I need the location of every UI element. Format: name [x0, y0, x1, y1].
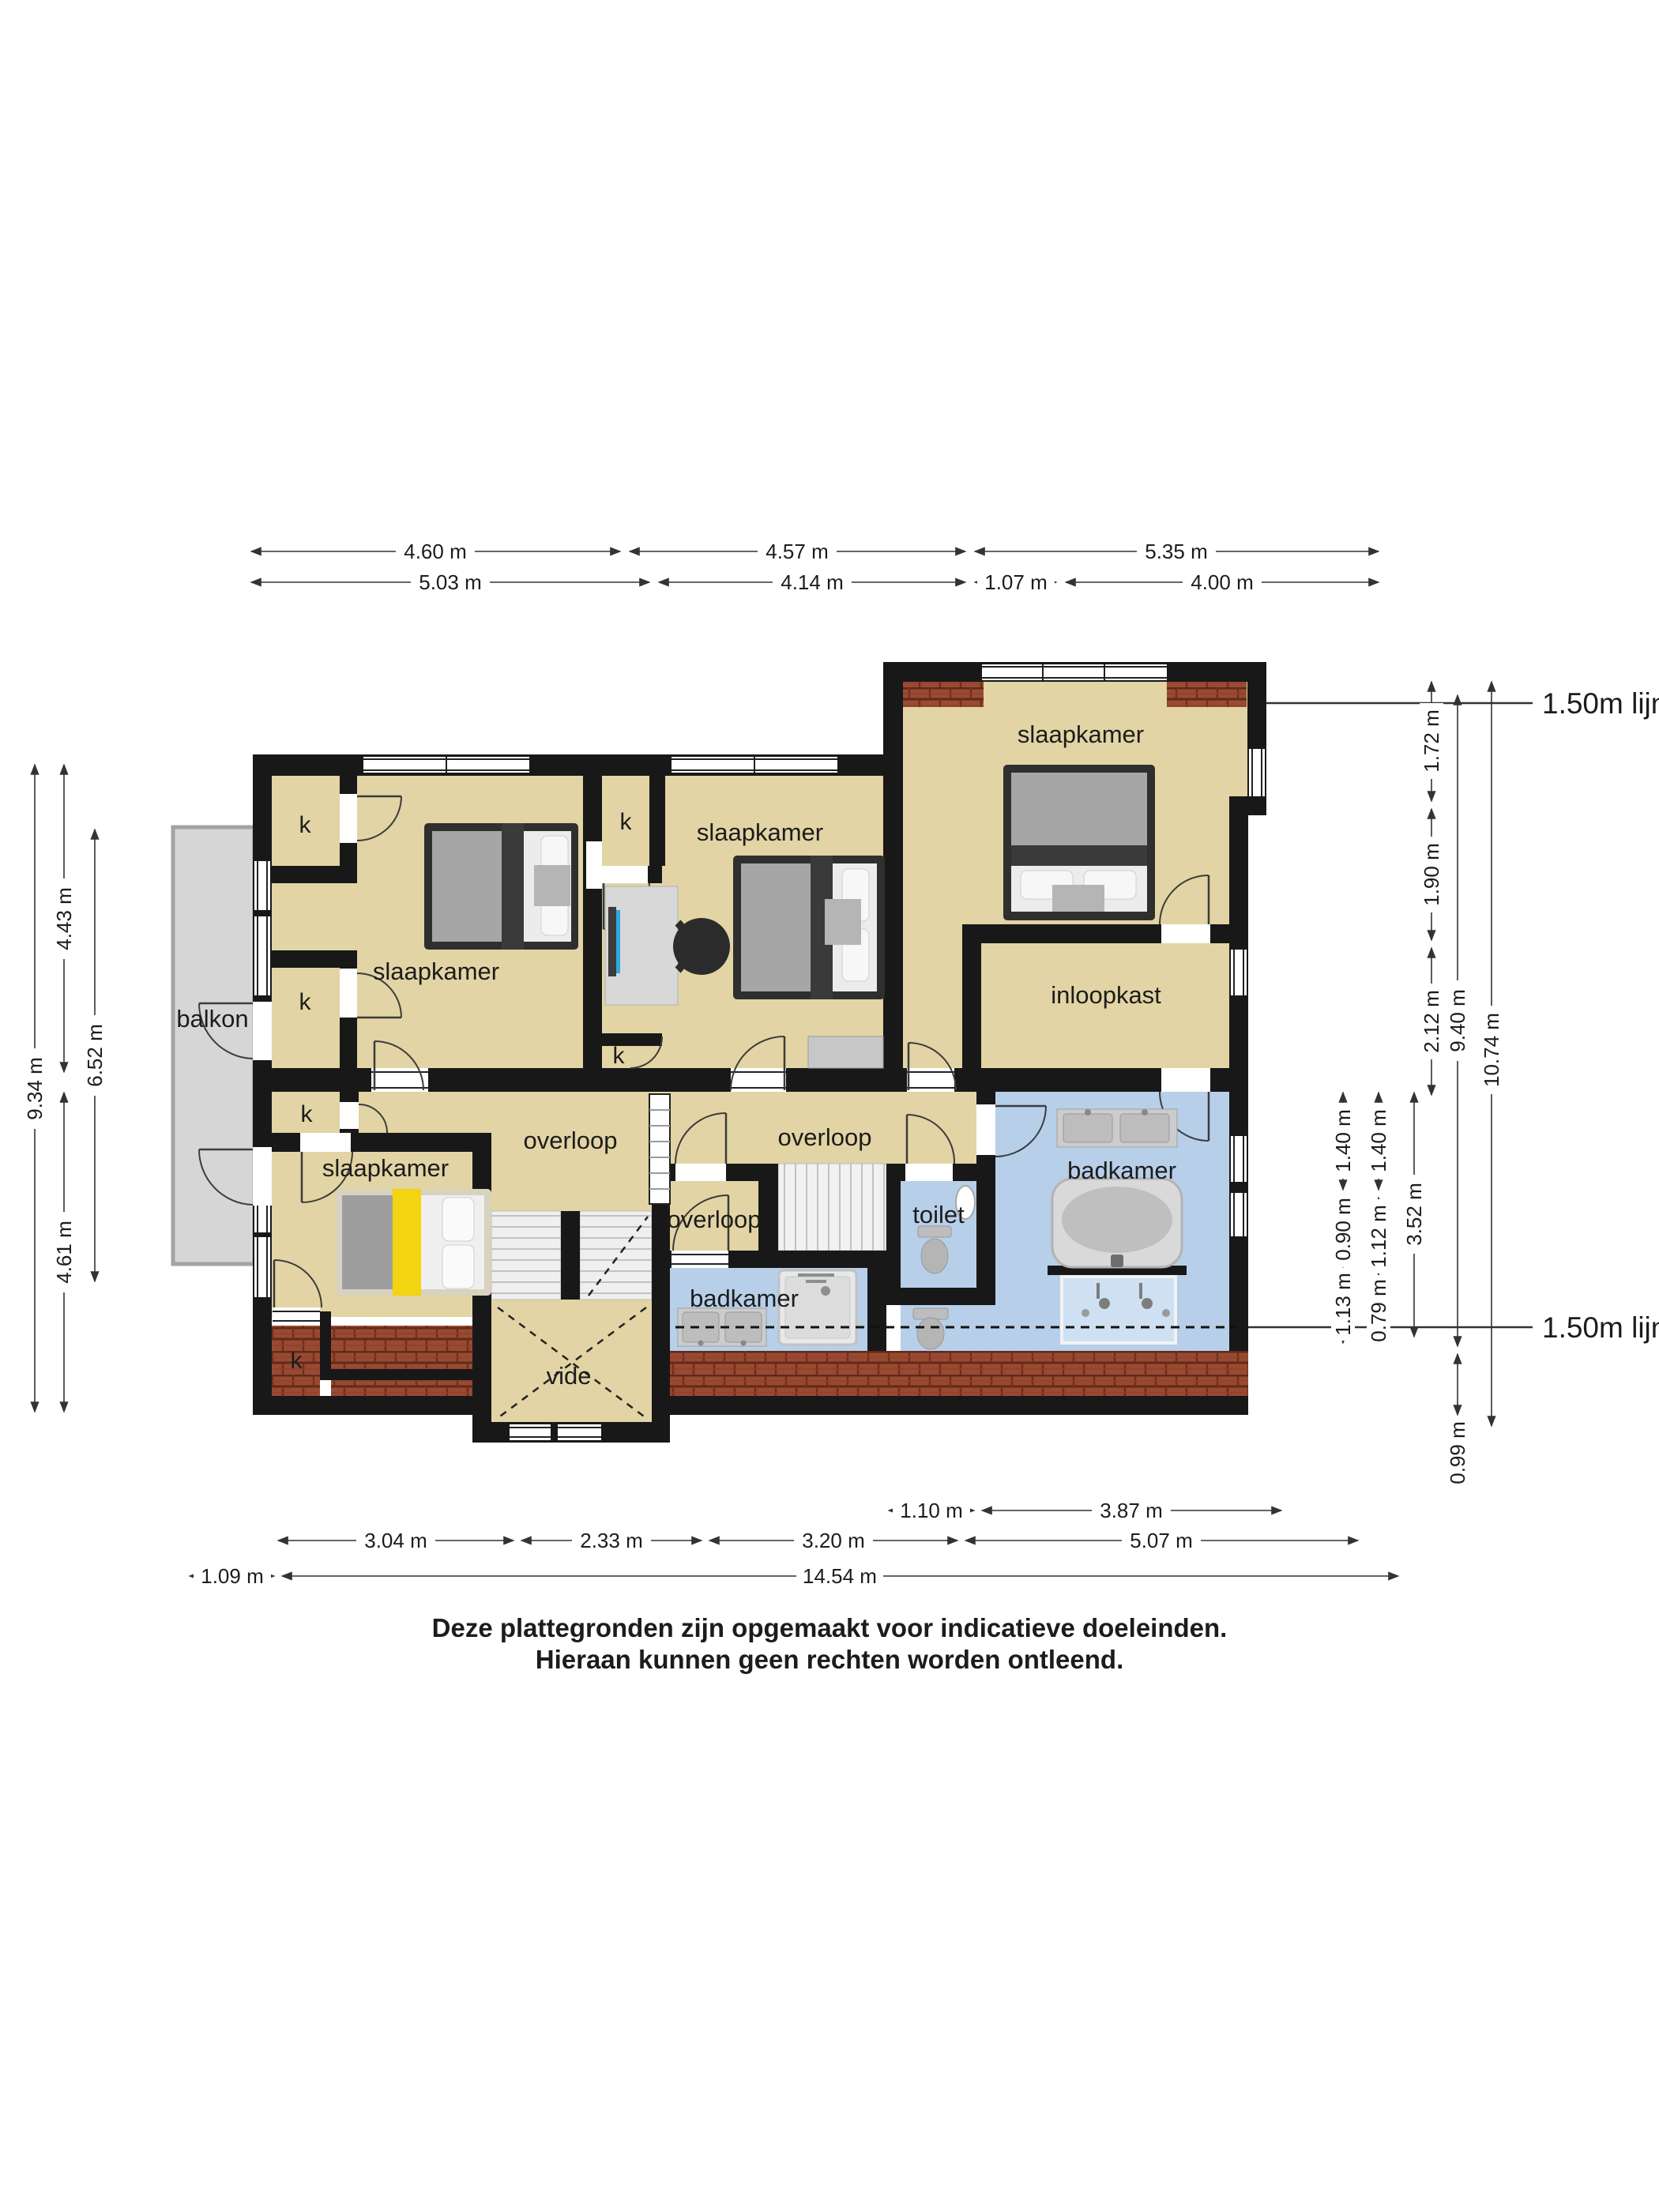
wall-bottom-left	[253, 1396, 491, 1415]
dim-top-414: 4.14 m	[659, 570, 965, 594]
window-top-3	[982, 664, 1167, 680]
room-label-walk-in-closet: inloopkast	[1051, 981, 1161, 1009]
room-label-landing-left: overloop	[524, 1127, 618, 1154]
wall-recess-bedroom1-2	[586, 841, 602, 889]
dim-bottom-110: 1.10 m	[889, 1499, 974, 1522]
dim-right-140a: 1.40 m	[1331, 1093, 1355, 1190]
disclaimer-line-2: Hieraan kunnen geen rechten worden ontle…	[536, 1645, 1123, 1674]
dim-top-535: 5.35 m	[975, 540, 1379, 563]
room-label-bedroom-4: slaapkamer	[322, 1154, 449, 1182]
svg-text:4.57 m: 4.57 m	[766, 540, 829, 563]
wall-toilet-bottom	[886, 1288, 980, 1305]
svg-text:1.40 m: 1.40 m	[1367, 1109, 1390, 1172]
balcony-floor	[173, 827, 254, 1264]
svg-text:4.43 m: 4.43 m	[52, 887, 76, 950]
closet-label-k2: k	[299, 989, 312, 1015]
dim-right-099: 0.99 m	[1446, 1354, 1469, 1489]
svg-text:4.00 m: 4.00 m	[1191, 570, 1254, 594]
dim-bottom-233: 2.33 m	[521, 1529, 702, 1552]
svg-text:0.79 m: 0.79 m	[1367, 1279, 1390, 1342]
wall-bottom-right	[652, 1396, 1248, 1415]
floor-plan-page: 1.50m lijn 1.50m lijn slaapkamer slaapka…	[0, 0, 1659, 2212]
dim-top-457: 4.57 m	[630, 540, 965, 563]
svg-text:6.52 m: 6.52 m	[83, 1024, 107, 1087]
bedroom-3-alcove-floor	[903, 924, 962, 1092]
line-150-bottom-label: 1.50m lijn	[1542, 1311, 1659, 1344]
line-150-top-label: 1.50m lijn	[1542, 687, 1659, 720]
svg-text:4.14 m: 4.14 m	[781, 570, 844, 594]
closet-label-k3: k	[620, 809, 633, 835]
wall-left-outer	[253, 754, 272, 1415]
wall-landing-stairs-divider	[758, 1164, 778, 1251]
dim-bottom-507: 5.07 m	[965, 1529, 1358, 1552]
dim-bottom-304: 3.04 m	[278, 1529, 513, 1552]
svg-text:14.54 m: 14.54 m	[803, 1564, 877, 1588]
dim-top-503: 5.03 m	[251, 570, 649, 594]
svg-text:3.52 m: 3.52 m	[1402, 1183, 1426, 1246]
window-vide-2	[558, 1424, 601, 1440]
roof-tiles-bottom-right	[670, 1351, 1248, 1396]
room-label-bathroom-large: badkamer	[1067, 1157, 1176, 1184]
dim-left-461: 4.61 m	[52, 1093, 76, 1412]
dim-right-1074: 10.74 m	[1480, 682, 1503, 1426]
roof-tiles-top-left	[902, 682, 984, 707]
svg-text:0.99 m: 0.99 m	[1446, 1421, 1469, 1484]
closet-label-k5: k	[291, 1348, 303, 1374]
window-right-4	[1231, 1193, 1247, 1236]
double-sink-large-bathroom	[1057, 1109, 1177, 1147]
wall-bathroom-small-right	[867, 1268, 886, 1351]
svg-text:2.12 m: 2.12 m	[1420, 990, 1443, 1053]
svg-text:4.61 m: 4.61 m	[52, 1221, 76, 1284]
room-label-bedroom-3: slaapkamer	[1018, 720, 1144, 748]
svg-text:1.12 m: 1.12 m	[1367, 1205, 1390, 1268]
wall-tile-stub-h	[320, 1369, 472, 1380]
window-right-1	[1249, 749, 1265, 796]
glazed-partition	[649, 1094, 670, 1204]
dim-bottom-320: 3.20 m	[709, 1529, 957, 1552]
single-bed-yellow	[336, 1189, 491, 1296]
dim-bottom-1454: 14.54 m	[282, 1564, 1398, 1588]
stair-flight-left	[491, 1211, 561, 1300]
dim-right-090: 0.90 m	[1331, 1191, 1355, 1267]
stair-flight-right	[580, 1211, 652, 1300]
svg-text:1.13 m: 1.13 m	[1331, 1273, 1355, 1336]
walk-in-shower	[1062, 1277, 1176, 1343]
room-label-vide: vide	[547, 1362, 592, 1390]
svg-text:0.90 m: 0.90 m	[1331, 1198, 1355, 1261]
stair-flight-main	[778, 1164, 886, 1251]
dim-right-140b: 1.40 m	[1367, 1093, 1390, 1190]
window-left-1	[254, 861, 270, 910]
dim-right-352: 3.52 m	[1402, 1093, 1426, 1337]
wall-stairwell-right	[652, 1204, 670, 1430]
disclaimer-line-1: Deze plattegronden zijn opgemaakt voor i…	[432, 1613, 1228, 1642]
dim-right-172: 1.72 m	[1420, 682, 1443, 801]
dim-top-460: 4.60 m	[251, 540, 620, 563]
svg-text:3.04 m: 3.04 m	[364, 1529, 427, 1552]
svg-text:10.74 m: 10.74 m	[1480, 1013, 1503, 1087]
svg-text:1.09 m: 1.09 m	[201, 1564, 264, 1588]
svg-text:5.03 m: 5.03 m	[419, 570, 482, 594]
monitor-icon	[608, 907, 616, 976]
wall-divider-blocks	[883, 682, 903, 1092]
room-label-toilet: toilet	[912, 1201, 965, 1228]
svg-text:1.40 m: 1.40 m	[1331, 1109, 1355, 1172]
room-label-landing-right: overloop	[778, 1123, 872, 1151]
dim-left-934: 9.34 m	[23, 765, 47, 1412]
svg-text:1.10 m: 1.10 m	[900, 1499, 963, 1522]
landing-left-floor-a	[359, 1092, 670, 1133]
svg-text:5.35 m: 5.35 m	[1145, 540, 1208, 563]
wall-bedroom1-2-divider	[583, 776, 602, 1068]
svg-text:9.34 m: 9.34 m	[23, 1057, 47, 1120]
window-right-2	[1231, 950, 1247, 995]
room-label-landing-middle: overloop	[668, 1206, 762, 1233]
wall-tile-stub-v	[320, 1311, 331, 1369]
svg-text:1.07 m: 1.07 m	[984, 570, 1048, 594]
svg-text:3.20 m: 3.20 m	[802, 1529, 865, 1552]
dim-right-940: 9.40 m	[1446, 695, 1469, 1346]
window-left-2	[254, 916, 270, 995]
window-top-2	[671, 757, 837, 773]
disclaimer: Deze plattegronden zijn opgemaakt voor i…	[432, 1613, 1228, 1674]
dim-bottom-109: 1.09 m	[190, 1564, 274, 1588]
wall-stair-divider	[561, 1211, 580, 1300]
double-bed-3	[1003, 765, 1155, 920]
room-label-balcony: balkon	[176, 1005, 248, 1033]
roof-tiles-top-right	[1167, 682, 1247, 707]
svg-text:2.33 m: 2.33 m	[580, 1529, 643, 1552]
dim-right-212: 2.12 m	[1420, 948, 1443, 1095]
closet-label-k1: k	[299, 812, 312, 838]
window-right-3	[1231, 1136, 1247, 1182]
wall-closet-k4-top	[602, 1033, 662, 1046]
dim-left-652: 6.52 m	[83, 829, 107, 1281]
svg-text:5.07 m: 5.07 m	[1130, 1529, 1193, 1552]
dim-bottom-387: 3.87 m	[982, 1499, 1281, 1522]
bathtub	[1052, 1179, 1182, 1267]
svg-text:1.72 m: 1.72 m	[1420, 709, 1443, 773]
dim-right-079: 0.79 m	[1367, 1275, 1390, 1346]
dim-left-443: 4.43 m	[52, 765, 76, 1072]
dim-top-400: 4.00 m	[1066, 570, 1379, 594]
wall-right-step	[1229, 796, 1266, 815]
wall-stairs-toilet-divider	[886, 1164, 901, 1305]
wall-walkin-closet-left	[962, 924, 981, 1092]
dresser	[808, 1036, 883, 1068]
svg-text:3.87 m: 3.87 m	[1100, 1499, 1163, 1522]
dim-right-112: 1.12 m	[1367, 1198, 1390, 1275]
dim-right-113: 1.13 m	[1331, 1268, 1355, 1343]
dim-top-107: 1.07 m	[975, 570, 1056, 594]
double-bed-2	[733, 856, 885, 999]
dim-right-190: 1.90 m	[1420, 809, 1443, 940]
roof-tiles-bottom-left	[331, 1326, 472, 1396]
double-bed-1	[424, 823, 578, 950]
wall-closet-k3-right	[649, 776, 665, 866]
window-left-4	[254, 1237, 270, 1297]
svg-text:9.40 m: 9.40 m	[1446, 989, 1469, 1052]
room-label-bathroom-small: badkamer	[690, 1285, 799, 1312]
closet-label-k6: k	[301, 1101, 314, 1127]
closet-label-k4: k	[613, 1043, 626, 1069]
floor-plan-canvas: 1.50m lijn 1.50m lijn slaapkamer slaapka…	[0, 0, 1659, 2212]
window-vide-1	[510, 1424, 551, 1440]
room-label-bedroom-2: slaapkamer	[697, 818, 823, 846]
room-label-bedroom-1: slaapkamer	[373, 957, 499, 985]
window-top-1	[363, 757, 529, 773]
svg-text:4.60 m: 4.60 m	[404, 540, 467, 563]
svg-text:1.90 m: 1.90 m	[1420, 843, 1443, 906]
